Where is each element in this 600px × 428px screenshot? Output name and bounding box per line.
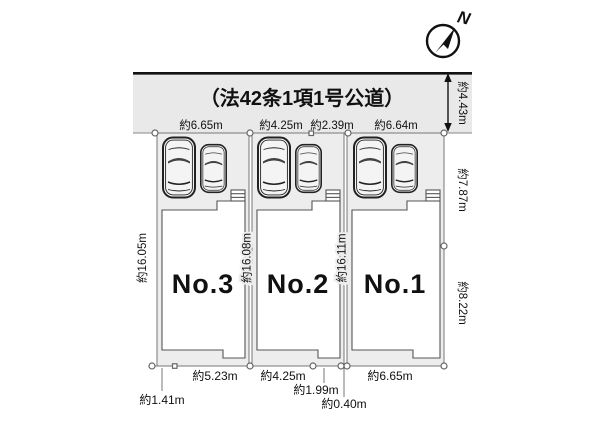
survey-marker [247,130,253,136]
dim-boundary-2-1: 約16.11m [335,233,349,282]
dim-top-1: 約6.65m [179,118,222,132]
entrance-steps-no3 [231,190,245,201]
dim-bottom-1-41: 約1.41m [139,392,184,407]
car-icon [160,138,197,198]
car-icon [199,145,229,193]
lot-label-no3: No.3 [172,269,235,299]
top-dimensions: 約6.65m 約4.25m 約2.39m 約6.64m [179,118,417,132]
survey-marker [152,130,158,136]
survey-marker [345,130,351,136]
plot-layout-diagram: （法42条1項1号公道） No.3 No.2 No.1 [0,0,600,428]
dim-bottom-4-25: 約4.25m [260,368,305,383]
survey-marker [441,130,447,136]
dim-boundary-3-2: 約16.08m [240,233,254,283]
north-compass: N [427,7,473,57]
survey-marker [309,131,314,136]
lot-label-no2: No.2 [267,269,330,299]
car-icon [390,145,420,193]
survey-marker [441,363,447,369]
dim-top-4: 約6.64m [374,118,417,132]
road-width-label: 約4.43m [456,81,470,124]
survey-marker [441,243,447,249]
survey-marker [310,363,316,369]
road-width-dimension: 約4.43m [444,73,470,132]
car-icon [351,138,388,198]
dim-bottom-0-40: 約0.40m [321,396,366,411]
survey-marker [247,363,253,369]
car-icon [255,138,292,198]
dim-left: 約16.05m [135,233,149,283]
entrance-steps-no2 [326,190,340,201]
site-plan-svg: （法42条1項1号公道） No.3 No.2 No.1 [0,0,600,428]
lot-label-no1: No.1 [364,269,427,299]
dim-top-2: 約4.25m [259,118,302,132]
dim-right-lower: 約8.22m [456,281,470,324]
dim-right-upper: 約7.87m [456,168,470,211]
dim-bottom-1-99: 約1.99m [293,382,338,397]
dim-bottom-5-23: 約5.23m [192,368,237,383]
bottom-dimensions: 約5.23m 約4.25m 約1.99m 約0.40m 約6.65m 約1.41… [139,366,412,411]
road-label: （法42条1項1号公道） [200,86,405,110]
dim-bottom-6-65: 約6.65m [367,368,412,383]
car-icon [294,145,324,193]
survey-marker [149,363,155,369]
survey-marker [173,364,178,369]
north-label: N [456,7,473,29]
survey-marker [344,363,350,369]
survey-marker [338,363,344,369]
entrance-steps-no1 [426,190,440,201]
